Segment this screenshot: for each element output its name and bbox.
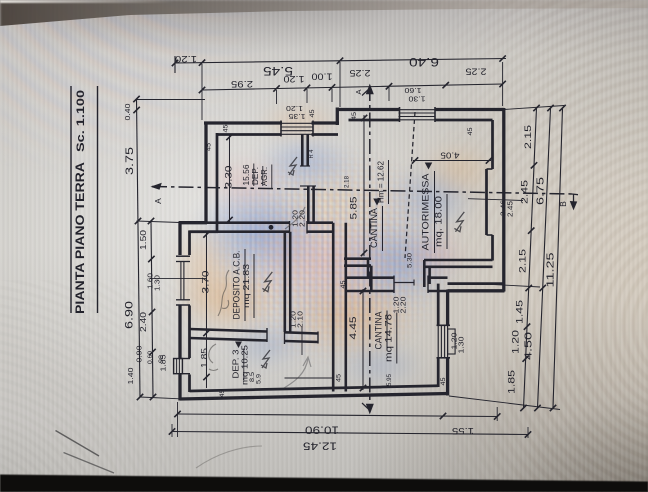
svg-text:10.90: 10.90 [305,424,339,436]
svg-text:1.60: 1.60 [148,273,155,289]
svg-text:DEPOSITO A.C.B.: DEPOSITO A.C.B. [232,251,242,320]
svg-text:2.46: 2.46 [501,200,508,216]
svg-text:45: 45 [340,280,347,289]
svg-text:1.30: 1.30 [409,95,426,104]
svg-text:3.30: 3.30 [224,166,234,189]
svg-text:1.85: 1.85 [199,348,209,368]
svg-text:45: 45 [206,142,213,151]
svg-text:CANTINA: CANTINA [369,207,380,248]
svg-text:1.30: 1.30 [457,337,466,354]
svg-text:6.40: 6.40 [409,55,439,67]
svg-text:5.9: 5.9 [257,373,263,384]
svg-text:2.18: 2.18 [345,175,351,188]
svg-text:mq. 18.00: mq. 18.00 [434,196,445,247]
svg-text:0.90: 0.90 [135,346,144,363]
svg-text:45: 45 [440,377,447,386]
svg-text:1.40: 1.40 [126,368,135,385]
svg-text:1.85: 1.85 [159,355,168,372]
svg-text:45: 45 [467,127,474,136]
svg-text:Sc. 1.100: Sc. 1.100 [75,90,87,152]
svg-text:6.90: 6.90 [124,301,136,329]
svg-text:5.30: 5.30 [407,253,414,268]
svg-text:A: A [153,198,163,204]
svg-text:45: 45 [309,109,316,118]
svg-text:2.10: 2.10 [296,311,305,328]
svg-text:2.25: 2.25 [350,68,371,78]
svg-text:4.50: 4.50 [523,332,535,360]
svg-text:AGR.: AGR. [259,167,269,186]
svg-text:2.25: 2.25 [466,67,487,77]
svg-text:A: A [354,89,363,94]
svg-text:2.40: 2.40 [138,312,148,332]
svg-text:Hm = 12.62: Hm = 12.62 [377,160,386,203]
svg-text:AUTORIMESSA: AUTORIMESSA [421,173,432,251]
svg-text:0.40: 0.40 [123,104,132,121]
svg-text:1.20: 1.20 [286,104,303,113]
svg-text:1.30: 1.30 [155,275,162,291]
svg-text:1.20: 1.20 [284,74,305,84]
svg-text:1.20: 1.20 [511,330,522,354]
svg-text:2.45: 2.45 [508,201,515,217]
svg-text:1.60: 1.60 [405,86,422,95]
svg-text:4.45: 4.45 [348,317,358,340]
svg-text:2.15: 2.15 [518,249,529,273]
svg-text:3.70: 3.70 [201,271,211,294]
svg-text:R 4: R 4 [309,149,315,159]
svg-text:1.20: 1.20 [175,53,197,64]
svg-text:45: 45 [336,373,343,382]
svg-text:4.05: 4.05 [440,151,460,160]
svg-text:1.45: 1.45 [515,300,526,324]
svg-text:mq 10.25: mq 10.25 [241,344,250,385]
svg-text:5.85: 5.85 [349,197,359,220]
svg-text:45: 45 [351,111,358,120]
svg-text:45: 45 [219,389,226,398]
svg-text:PIANTA PIANO TERRA: PIANTA PIANO TERRA [75,162,87,314]
svg-text:mq 21.83: mq 21.83 [241,264,251,308]
svg-text:1.85: 1.85 [507,370,518,394]
svg-text:1.35: 1.35 [289,112,306,121]
svg-text:1.50: 1.50 [138,230,148,250]
svg-text:5.95: 5.95 [387,373,393,386]
svg-text:mq 14.78: mq 14.78 [384,314,394,362]
svg-text:2.95: 2.95 [231,79,253,89]
svg-text:6.75: 6.75 [535,177,547,205]
svg-text:3.75: 3.75 [124,147,136,175]
svg-text:12.45: 12.45 [303,440,337,452]
svg-text:45: 45 [223,124,230,133]
svg-text:11.25: 11.25 [545,252,557,287]
svg-text:2.20: 2.20 [399,297,408,314]
svg-text:2.15: 2.15 [523,125,534,149]
svg-text:8.5: 8.5 [250,371,256,382]
svg-text:DEP. 3: DEP. 3 [231,349,241,378]
svg-text:1.00: 1.00 [312,72,333,82]
